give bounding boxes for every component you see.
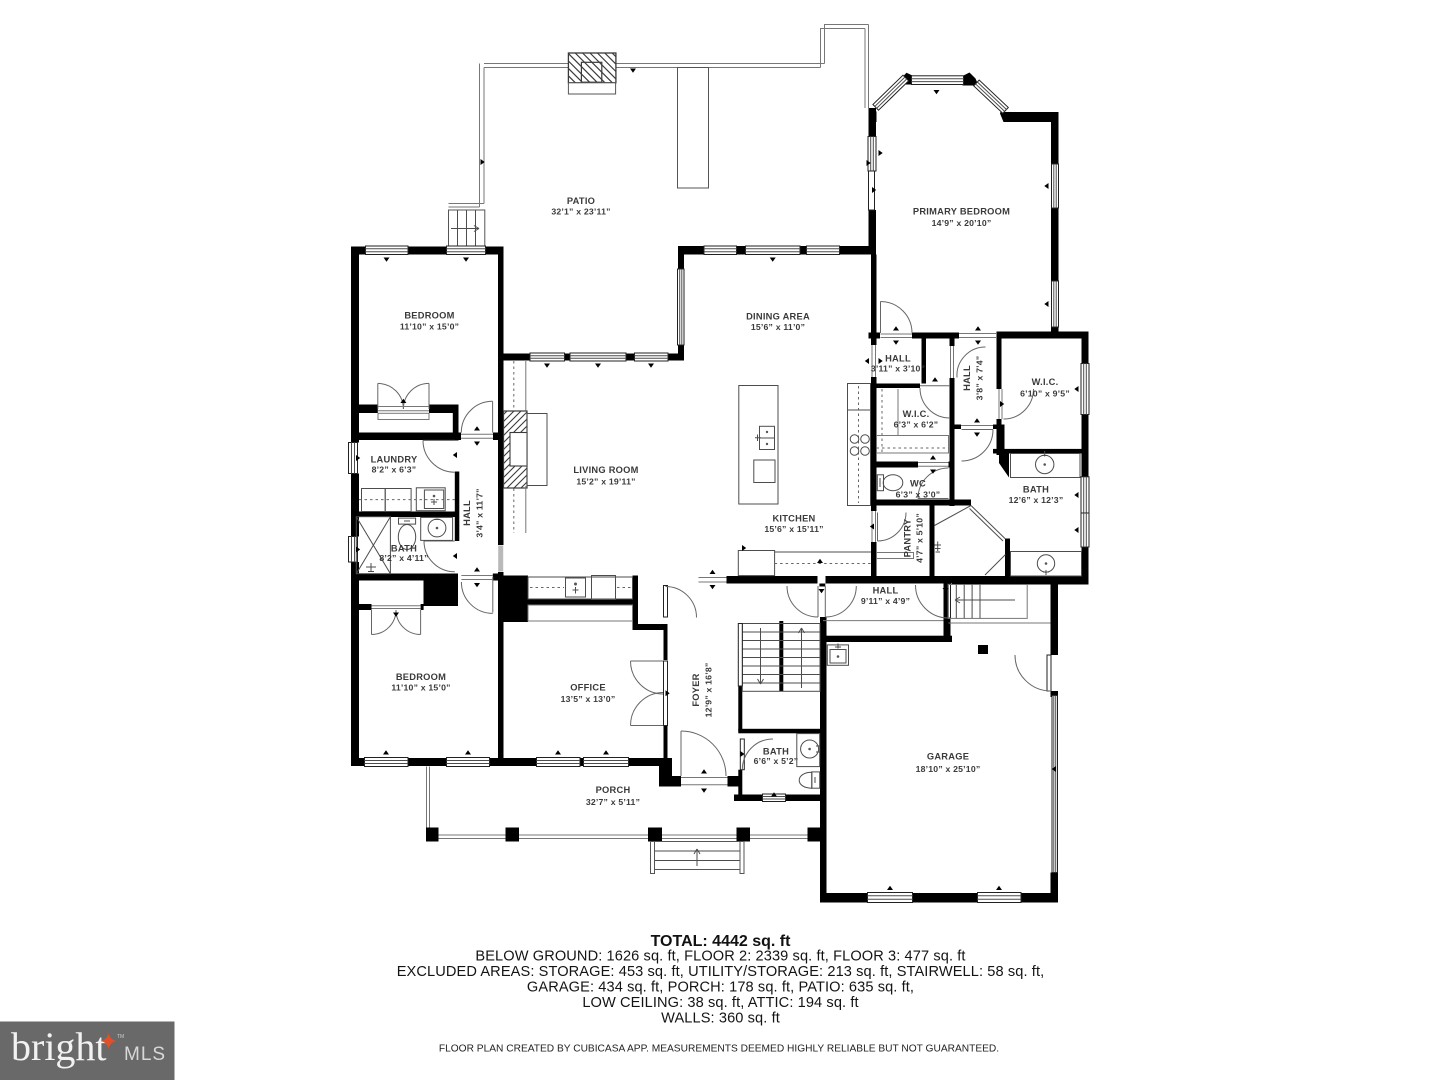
svg-text:3’11” x 3’10”: 3’11” x 3’10”: [871, 364, 925, 374]
svg-text:15’6” x 15’11”: 15’6” x 15’11”: [764, 524, 823, 534]
svg-text:BATH: BATH: [763, 747, 789, 757]
svg-text:13’5” x 13’0”: 13’5” x 13’0”: [561, 694, 616, 704]
svg-text:BEDROOM: BEDROOM: [404, 311, 454, 321]
svg-text:6’3” x 3’0”: 6’3” x 3’0”: [896, 490, 941, 500]
svg-text:PATIO: PATIO: [567, 196, 595, 206]
svg-text:BELOW GROUND: 1626 sq. ft, FLO: BELOW GROUND: 1626 sq. ft, FLOOR 2: 2339…: [475, 949, 965, 965]
svg-text:11’10” x 15’0”: 11’10” x 15’0”: [400, 322, 459, 332]
svg-text:HALL: HALL: [462, 500, 472, 526]
svg-text:FOYER: FOYER: [691, 673, 701, 706]
svg-text:PORCH: PORCH: [596, 785, 631, 795]
svg-text:FLOOR PLAN CREATED BY CUBICASA: FLOOR PLAN CREATED BY CUBICASA APP. MEAS…: [439, 1044, 999, 1055]
svg-text:8’2” x 6’3”: 8’2” x 6’3”: [372, 465, 417, 475]
svg-text:BEDROOM: BEDROOM: [396, 672, 446, 682]
svg-text:KITCHEN: KITCHEN: [772, 514, 815, 524]
svg-text:3’4” x 11’7”: 3’4” x 11’7”: [475, 488, 485, 537]
svg-text:18’10” x 25’10”: 18’10” x 25’10”: [916, 764, 981, 774]
svg-text:6’6” x 5’2”: 6’6” x 5’2”: [754, 756, 799, 766]
svg-text:15’6” x 11’0”: 15’6” x 11’0”: [751, 322, 805, 332]
svg-text:8’2” x 4’11”: 8’2” x 4’11”: [379, 553, 428, 563]
svg-text:9’11” x 4’9”: 9’11” x 4’9”: [861, 596, 910, 606]
svg-text:DINING AREA: DINING AREA: [746, 312, 810, 322]
svg-text:WC: WC: [910, 479, 926, 489]
svg-text:W.I.C.: W.I.C.: [1032, 377, 1059, 387]
svg-text:32’7” x 5’11”: 32’7” x 5’11”: [586, 797, 640, 807]
svg-text:14’9” x 20’10”: 14’9” x 20’10”: [932, 218, 992, 228]
svg-text:LAUNDRY: LAUNDRY: [371, 455, 418, 465]
svg-text:HALL: HALL: [885, 354, 911, 364]
svg-text:4’7” x 5’10”: 4’7” x 5’10”: [915, 513, 925, 563]
svg-text:WALLS: 360 sq. ft: WALLS: 360 sq. ft: [661, 1011, 780, 1027]
svg-text:3’8” x 7’4”: 3’8” x 7’4”: [975, 356, 985, 401]
svg-text:OFFICE: OFFICE: [570, 683, 606, 693]
svg-text:LIVING ROOM: LIVING ROOM: [573, 465, 638, 475]
svg-text:TM: TM: [117, 1034, 124, 1040]
svg-text:12’9” x 16’8”: 12’9” x 16’8”: [704, 663, 714, 718]
svg-text:15’2” x 19’11”: 15’2” x 19’11”: [576, 477, 635, 487]
svg-text:MLS: MLS: [124, 1044, 166, 1065]
svg-text:6’3” x 6’2”: 6’3” x 6’2”: [894, 420, 939, 430]
svg-text:LOW CEILING: 38 sq. ft, ATTIC:: LOW CEILING: 38 sq. ft, ATTIC: 194 sq. f…: [582, 995, 858, 1011]
svg-text:GARAGE: GARAGE: [927, 752, 969, 762]
svg-text:BATH: BATH: [1023, 485, 1049, 495]
svg-text:BATH: BATH: [391, 544, 417, 554]
svg-text:TOTAL: 4442 sq. ft: TOTAL: 4442 sq. ft: [651, 933, 792, 950]
svg-text:HALL: HALL: [962, 365, 972, 391]
svg-text:EXCLUDED AREAS: STORAGE: 453 s: EXCLUDED AREAS: STORAGE: 453 sq. ft, UTI…: [397, 964, 1045, 980]
svg-text:PANTRY: PANTRY: [903, 518, 913, 557]
svg-text:12’6” x 12’3”: 12’6” x 12’3”: [1009, 495, 1064, 505]
svg-text:HALL: HALL: [873, 586, 899, 596]
svg-text:11’10” x 15’0”: 11’10” x 15’0”: [391, 683, 450, 693]
svg-text:32’1” x 23’11”: 32’1” x 23’11”: [551, 207, 610, 217]
svg-text:bright: bright: [11, 1024, 107, 1069]
svg-text:6’10” x 9’5”: 6’10” x 9’5”: [1020, 389, 1070, 399]
svg-text:GARAGE: 434 sq. ft, PORCH: 178: GARAGE: 434 sq. ft, PORCH: 178 sq. ft, P…: [527, 980, 914, 996]
svg-text:W.I.C.: W.I.C.: [903, 409, 930, 419]
svg-text:PRIMARY BEDROOM: PRIMARY BEDROOM: [913, 207, 1010, 217]
